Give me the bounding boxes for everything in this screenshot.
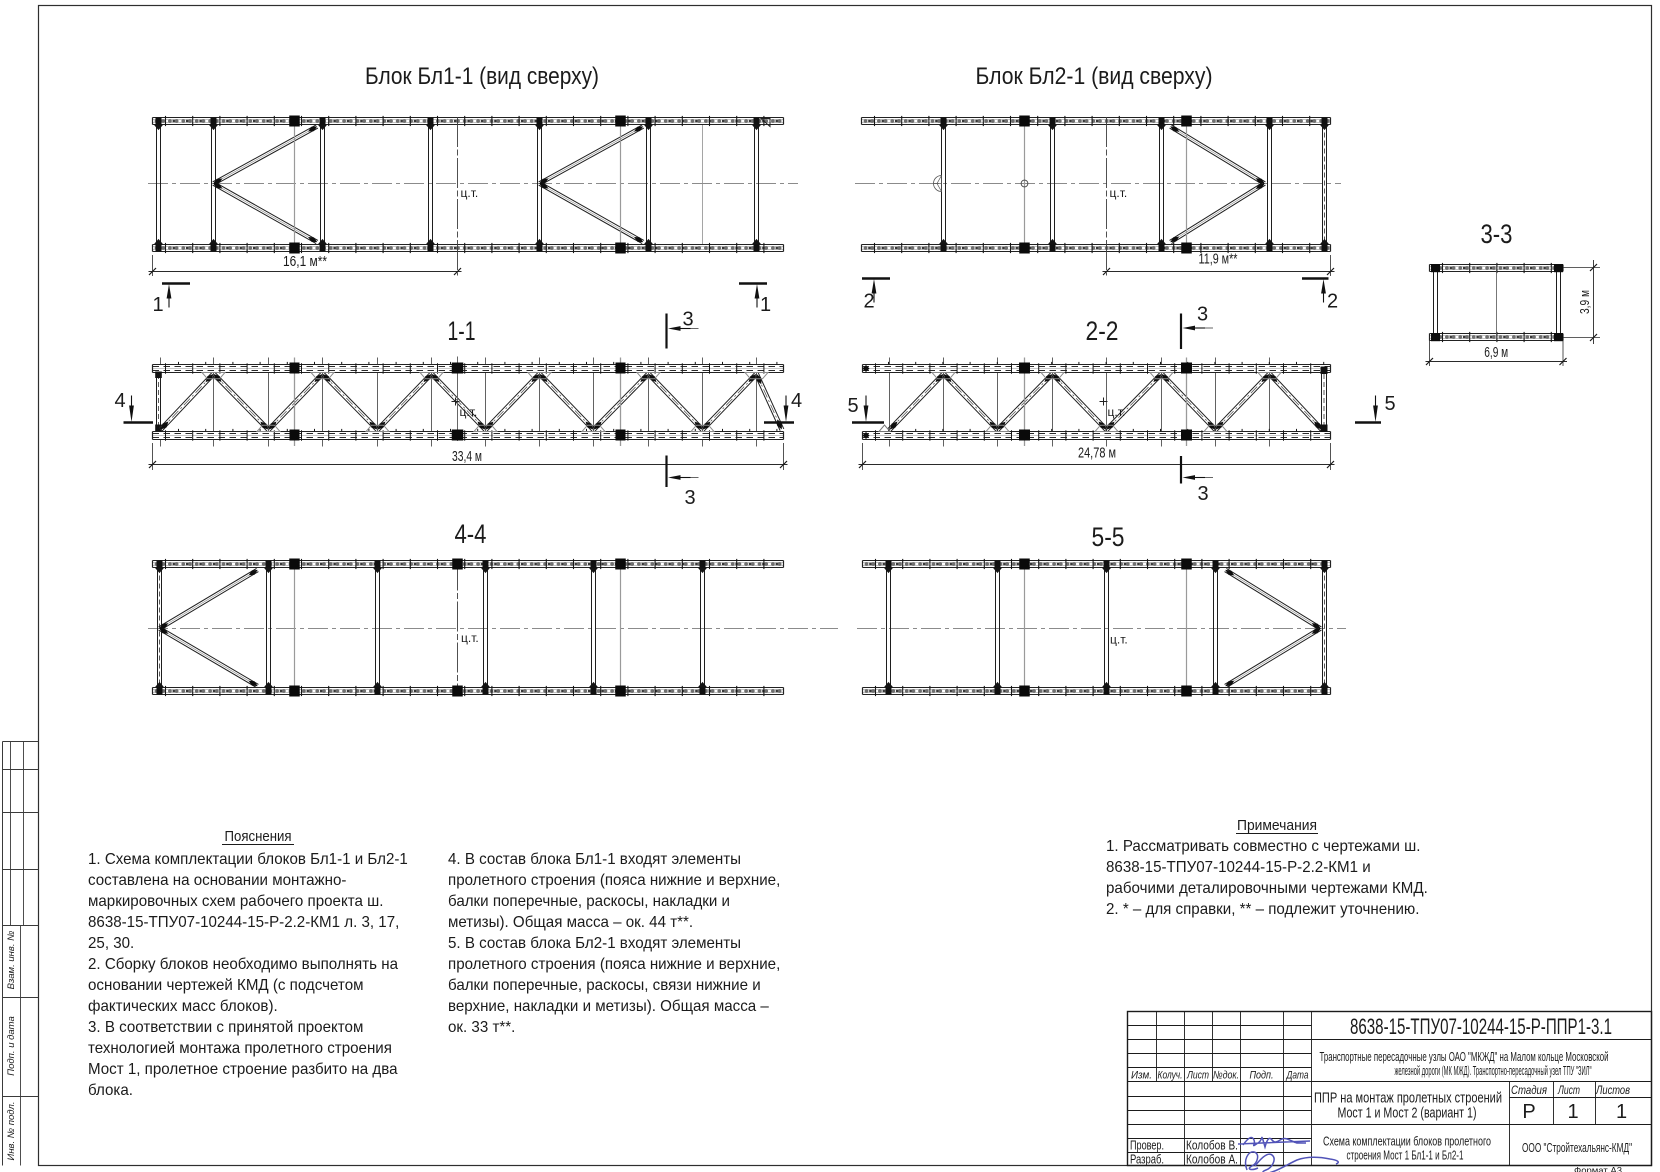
svg-text:блока.: блока. xyxy=(88,1082,133,1099)
svg-text:4-4: 4-4 xyxy=(455,519,487,549)
svg-text:Подп.: Подп. xyxy=(1250,1070,1274,1082)
svg-text:16,1 м**: 16,1 м** xyxy=(283,254,327,270)
svg-text:1. Схема комплектации блоков Б: 1. Схема комплектации блоков Бл1-1 и Бл2… xyxy=(88,851,408,868)
svg-text:технологией монтажа пролетного: технологией монтажа пролетного строения xyxy=(88,1040,392,1057)
svg-text:фактических масс блоков).: фактических масс блоков). xyxy=(88,998,278,1015)
svg-text:1-1: 1-1 xyxy=(448,316,476,346)
svg-text:составлена на основании монтаж: составлена на основании монтажно- xyxy=(88,872,346,889)
svg-text:№док.: №док. xyxy=(1213,1070,1239,1082)
svg-text:ц.т.: ц.т. xyxy=(1110,633,1128,647)
svg-text:Подп. и дата: Подп. и дата xyxy=(6,1016,17,1075)
svg-text:метизы). Общая масса – ок. 44: метизы). Общая масса – ок. 44 т**. xyxy=(448,914,693,931)
svg-text:2. Сборку блоков необходимо вы: 2. Сборку блоков необходимо выполнять на xyxy=(88,956,398,973)
svg-text:Пояснения: Пояснения xyxy=(225,828,292,845)
svg-text:пролетного строения (пояса ниж: пролетного строения (пояса нижние и верх… xyxy=(448,872,780,889)
svg-text:5: 5 xyxy=(847,395,858,417)
svg-text:балки поперечные, раскосы, свя: балки поперечные, раскосы, связи нижние … xyxy=(448,977,761,994)
svg-text:балки поперечные, раскосы, нак: балки поперечные, раскосы, накладки и xyxy=(448,893,730,910)
svg-text:ок. 33 т**.: ок. 33 т**. xyxy=(448,1019,515,1036)
svg-text:3: 3 xyxy=(682,309,693,331)
svg-text:4. В состав блока Бл1-1 входят: 4. В состав блока Бл1-1 входят элементы xyxy=(448,851,741,868)
svg-text:8638-15-ТПУ07-10244-15-Р-2.2-К: 8638-15-ТПУ07-10244-15-Р-2.2-КМ1 и xyxy=(1106,859,1371,876)
svg-text:Лист: Лист xyxy=(1557,1083,1580,1097)
svg-text:5. В состав блока Бл2-1 входят: 5. В состав блока Бл2-1 входят элементы xyxy=(448,935,741,952)
svg-text:3. В соответствии с принятой п: 3. В соответствии с принятой проектом xyxy=(88,1019,363,1036)
svg-text:ц.т.: ц.т. xyxy=(1110,186,1128,200)
svg-text:Инв. № подл.: Инв. № подл. xyxy=(6,1102,17,1161)
svg-text:24,78 м: 24,78 м xyxy=(1078,446,1116,462)
svg-text:Листов: Листов xyxy=(1595,1083,1630,1097)
svg-text:6,9 м: 6,9 м xyxy=(1484,345,1508,361)
svg-text:4: 4 xyxy=(791,390,802,412)
svg-text:маркировочных схем рабочего пр: маркировочных схем рабочего проекта ш. xyxy=(88,893,383,910)
svg-text:Мост 1 и Мост 2 (вариант 1): Мост 1 и Мост 2 (вариант 1) xyxy=(1338,1105,1477,1122)
svg-text:1: 1 xyxy=(760,294,771,316)
svg-text:Блок Бл1-1 (вид сверху): Блок Бл1-1 (вид сверху) xyxy=(365,63,599,90)
svg-text:25, 30.: 25, 30. xyxy=(88,935,134,952)
svg-text:Колуч.: Колуч. xyxy=(1158,1070,1183,1082)
svg-text:33,4 м: 33,4 м xyxy=(452,449,482,465)
svg-text:1: 1 xyxy=(1567,1101,1578,1123)
svg-text:основании чертежей КМД (с подс: основании чертежей КМД (с подсчетом xyxy=(88,977,364,994)
svg-text:Мост 1, пролетное строение раз: Мост 1, пролетное строение разбито на дв… xyxy=(88,1061,398,1078)
svg-text:8638-15-ТПУ07-10244-15-Р-ППР1-: 8638-15-ТПУ07-10244-15-Р-ППР1-3.1 xyxy=(1350,1014,1612,1039)
svg-text:3,9 м: 3,9 м xyxy=(1577,290,1592,314)
svg-text:5-5: 5-5 xyxy=(1092,522,1125,552)
svg-text:ц.т.: ц.т. xyxy=(460,405,478,419)
svg-text:ООО "Стройтехальянс-КМД": ООО "Стройтехальянс-КМД" xyxy=(1522,1141,1632,1155)
svg-text:рабочими деталировочными черте: рабочими деталировочными чертежами КМД. xyxy=(1106,880,1428,897)
svg-text:Р: Р xyxy=(1522,1101,1535,1123)
svg-text:Взам. инв. №: Взам. инв. № xyxy=(6,931,17,990)
svg-text:Транспортные пересадочные узлы: Транспортные пересадочные узлы ОАО "МКЖД… xyxy=(1320,1050,1609,1064)
svg-text:Дата: Дата xyxy=(1285,1070,1309,1082)
svg-text:ц.т.: ц.т. xyxy=(461,186,479,200)
svg-text:Стадия: Стадия xyxy=(1511,1083,1547,1097)
svg-text:2: 2 xyxy=(863,291,874,313)
svg-text:4: 4 xyxy=(114,390,125,412)
svg-text:2: 2 xyxy=(1327,291,1338,313)
svg-text:3: 3 xyxy=(684,487,695,509)
svg-text:строения Мост 1 Бл1-1 и Бл2-1: строения Мост 1 Бл1-1 и Бл2-1 xyxy=(1347,1149,1464,1163)
svg-text:3: 3 xyxy=(1197,483,1208,505)
svg-text:Провер.: Провер. xyxy=(1130,1139,1164,1153)
svg-text:Колобов В.: Колобов В. xyxy=(1186,1139,1238,1153)
svg-text:11,9 м**: 11,9 м** xyxy=(1199,252,1238,268)
svg-text:3-3: 3-3 xyxy=(1481,219,1513,249)
svg-text:железной дороги (МК МЖД). Тран: железной дороги (МК МЖД). Транспортно-пе… xyxy=(1395,1064,1592,1078)
svg-text:Схема комплектации блоков прол: Схема комплектации блоков пролетного xyxy=(1323,1135,1491,1149)
svg-text:1: 1 xyxy=(152,294,163,316)
svg-text:8638-15-ТПУ07-10244-15-Р-2.2-К: 8638-15-ТПУ07-10244-15-Р-2.2-КМ1 л. 3, 1… xyxy=(88,914,399,931)
svg-text:верхние, накладки и метизы). О: верхние, накладки и метизы). Общая масса… xyxy=(448,998,769,1015)
svg-text:Колобов А.: Колобов А. xyxy=(1186,1153,1238,1167)
svg-text:2. * – для справки, ** – подле: 2. * – для справки, ** – подлежит уточне… xyxy=(1106,901,1419,918)
svg-text:1. Рассматривать совместно с ч: 1. Рассматривать совместно с чертежами ш… xyxy=(1106,838,1420,855)
svg-text:пролетного строения (пояса ниж: пролетного строения (пояса нижние и верх… xyxy=(448,956,780,973)
svg-text:Формат А3: Формат А3 xyxy=(1574,1166,1622,1172)
svg-text:Лист: Лист xyxy=(1186,1070,1209,1082)
svg-text:ц.т.: ц.т. xyxy=(1108,405,1126,419)
svg-text:Изм.: Изм. xyxy=(1131,1070,1152,1082)
svg-text:ц.т.: ц.т. xyxy=(461,631,479,645)
svg-text:Разраб.: Разраб. xyxy=(1130,1153,1164,1167)
svg-text:3: 3 xyxy=(1197,304,1208,326)
svg-text:Блок Бл2-1 (вид сверху): Блок Бл2-1 (вид сверху) xyxy=(976,63,1213,90)
svg-text:5: 5 xyxy=(1384,393,1395,415)
svg-text:1: 1 xyxy=(1616,1101,1627,1123)
svg-text:2-2: 2-2 xyxy=(1086,316,1119,346)
svg-text:Примечания: Примечания xyxy=(1237,817,1317,834)
